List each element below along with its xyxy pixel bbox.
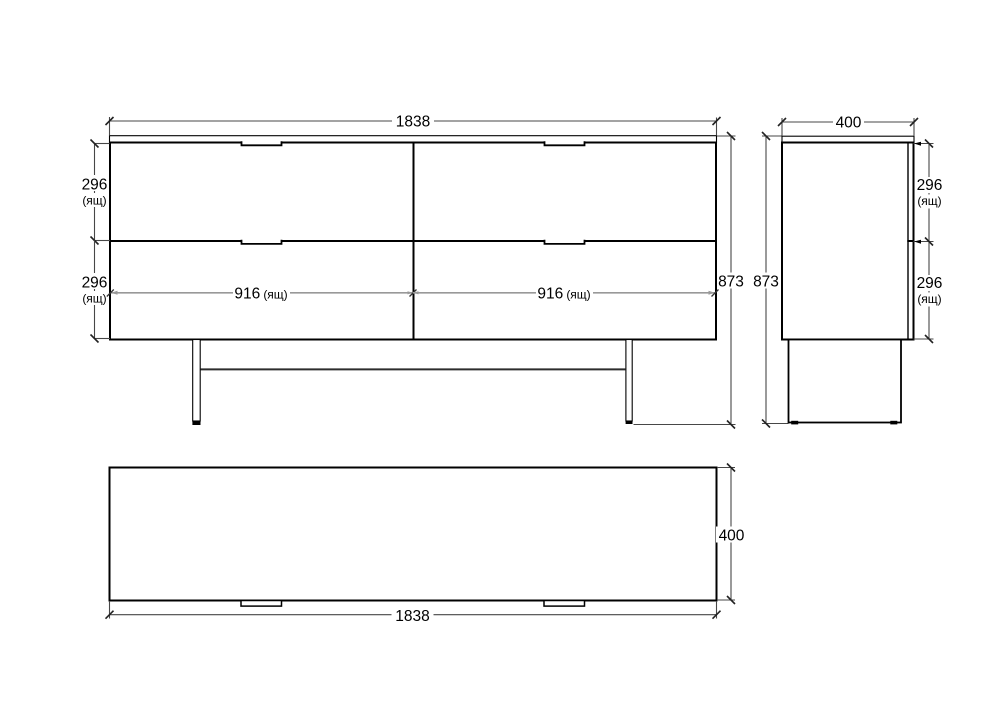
svg-text:(ящ): (ящ) bbox=[917, 194, 941, 208]
svg-text:(ящ): (ящ) bbox=[82, 194, 106, 208]
svg-text:400: 400 bbox=[836, 115, 862, 132]
svg-text:296: 296 bbox=[917, 275, 943, 292]
svg-text:1838: 1838 bbox=[395, 608, 429, 625]
svg-text:400: 400 bbox=[719, 528, 745, 545]
svg-text:916: 916 bbox=[537, 285, 563, 302]
svg-text:916: 916 bbox=[234, 285, 260, 302]
svg-text:296: 296 bbox=[82, 177, 108, 194]
svg-text:(ящ): (ящ) bbox=[263, 287, 287, 301]
svg-text:873: 873 bbox=[753, 273, 779, 290]
svg-text:(ящ): (ящ) bbox=[82, 292, 106, 306]
svg-text:296: 296 bbox=[917, 177, 943, 194]
svg-text:873: 873 bbox=[718, 273, 744, 290]
svg-text:(ящ): (ящ) bbox=[566, 287, 590, 301]
svg-text:296: 296 bbox=[82, 275, 108, 292]
svg-text:(ящ): (ящ) bbox=[917, 292, 941, 306]
svg-text:1838: 1838 bbox=[396, 114, 430, 131]
